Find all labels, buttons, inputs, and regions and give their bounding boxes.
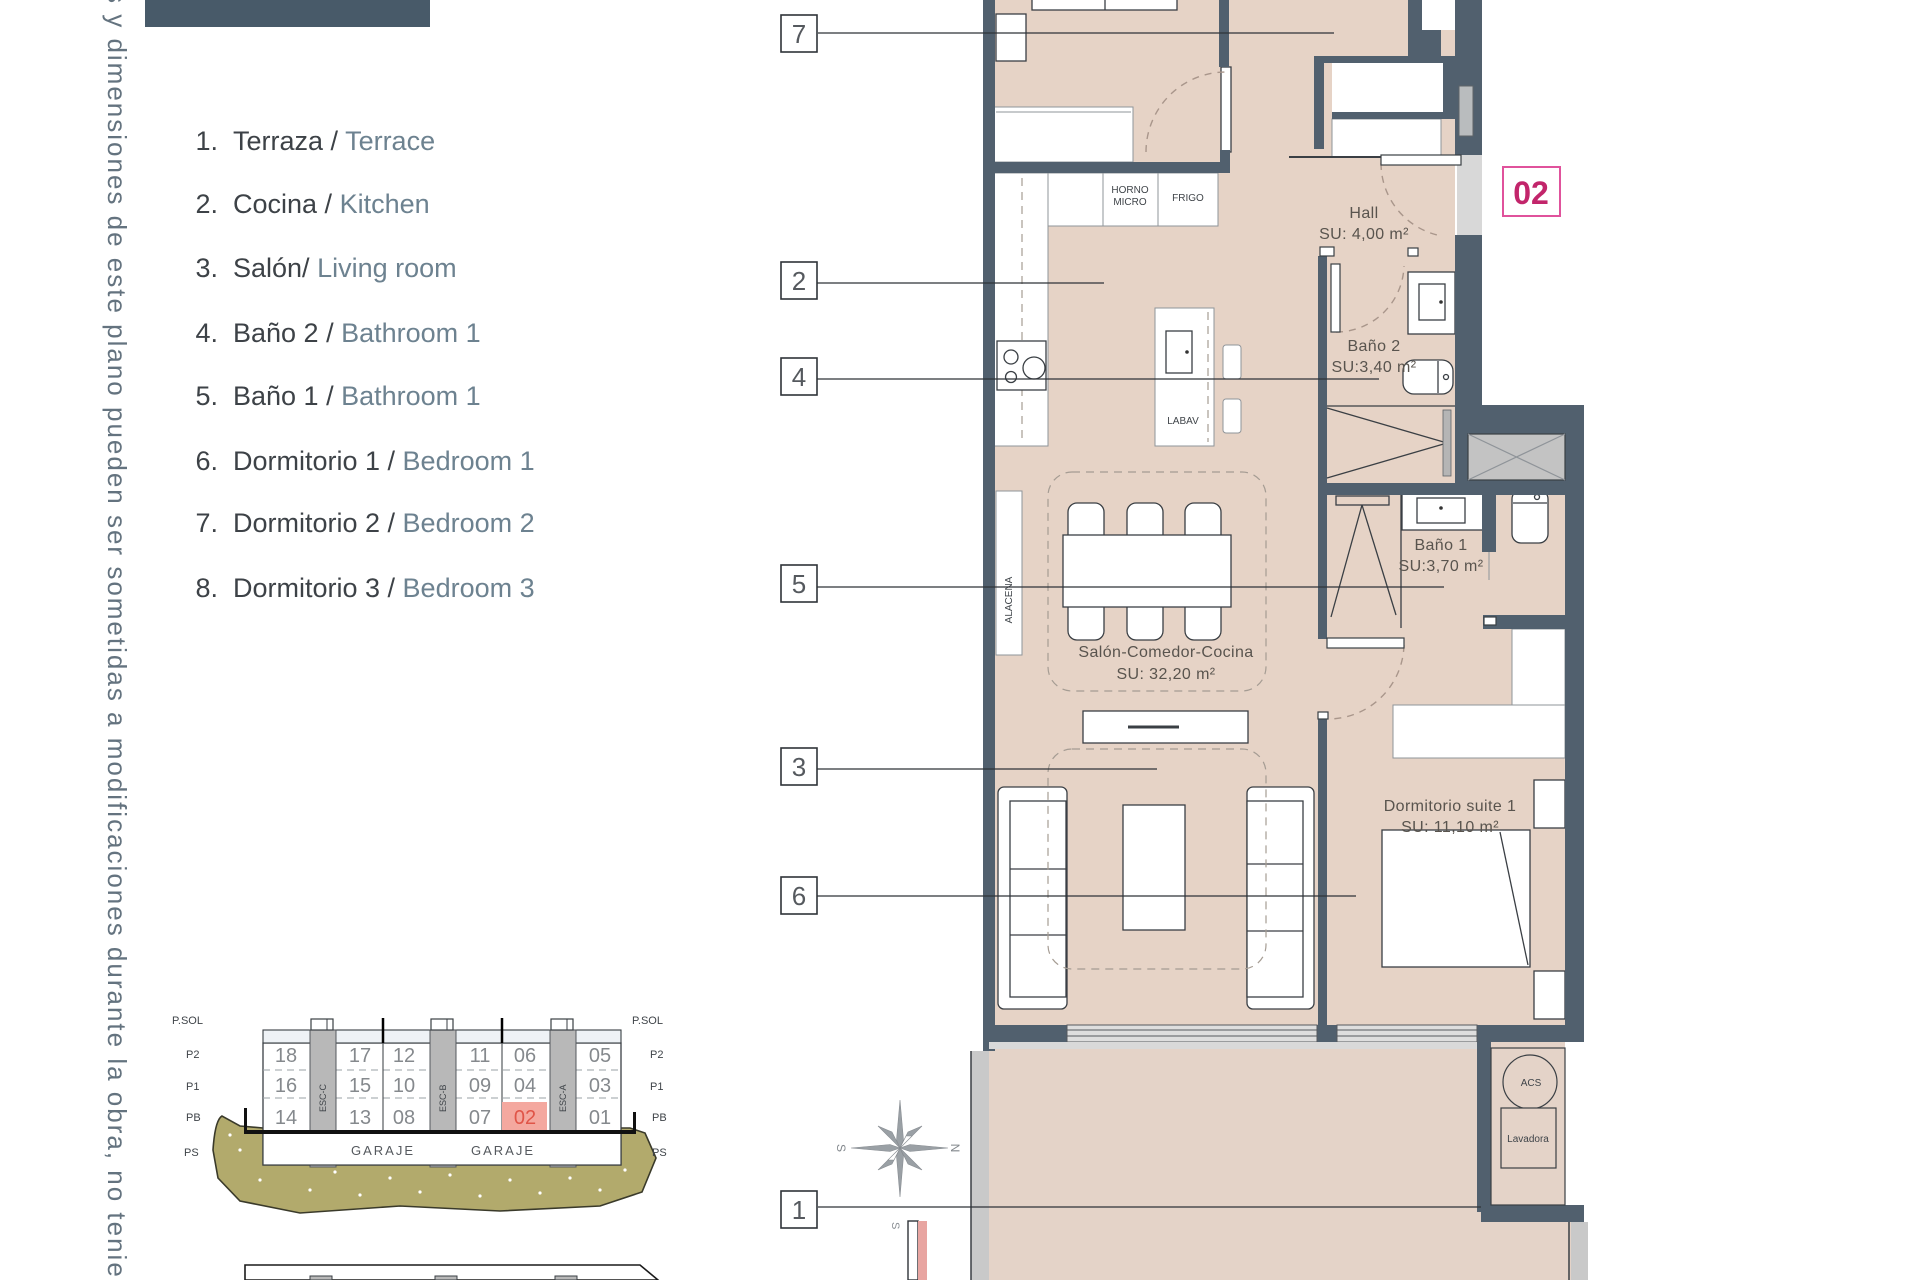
svg-text:Dormitorio 1 / Bedroom 1: Dormitorio 1 / Bedroom 1 (233, 446, 535, 476)
svg-text:02: 02 (514, 1107, 536, 1129)
svg-text:03: 03 (589, 1075, 611, 1097)
svg-text:ALACENA: ALACENA (1004, 576, 1015, 623)
svg-text:5: 5 (792, 569, 806, 599)
svg-text:13: 13 (349, 1107, 371, 1129)
svg-text:P.SOL: P.SOL (632, 1015, 663, 1027)
svg-text:GARAJE: GARAJE (351, 1143, 415, 1158)
svg-text:Dormitorio 3 / Bedroom 3: Dormitorio 3 / Bedroom 3 (233, 573, 535, 603)
svg-text:ACS: ACS (1521, 1078, 1542, 1089)
svg-text:HORNO: HORNO (1111, 185, 1148, 196)
svg-text:Terraza / Terrace: Terraza / Terrace (233, 126, 435, 156)
svg-text:Dormitorio 2 / Bedroom 2: Dormitorio 2 / Bedroom 2 (233, 508, 535, 538)
svg-text:S: S (889, 1222, 901, 1229)
svg-text:02: 02 (1513, 175, 1549, 211)
svg-text:ESC-A: ESC-A (558, 1084, 568, 1112)
svg-text:5.: 5. (195, 381, 218, 411)
svg-text:N: N (948, 1144, 962, 1153)
svg-text:SU: 32,20 m²: SU: 32,20 m² (1116, 666, 1215, 683)
svg-text:4.: 4. (195, 318, 218, 348)
svg-text:05: 05 (589, 1045, 611, 1067)
svg-text:08: 08 (393, 1107, 415, 1129)
svg-text:2: 2 (792, 266, 806, 296)
svg-text:P2: P2 (650, 1049, 663, 1061)
svg-text:Baño 1 / Bathroom 1: Baño 1 / Bathroom 1 (233, 381, 481, 411)
svg-text:14: 14 (275, 1107, 297, 1129)
svg-text:18: 18 (275, 1045, 297, 1067)
svg-text:SU:3,40 m²: SU:3,40 m² (1332, 359, 1417, 376)
svg-text:2.: 2. (195, 189, 218, 219)
svg-text:GARAJE: GARAJE (471, 1143, 535, 1158)
svg-text:12: 12 (393, 1045, 415, 1067)
svg-text:Baño 2 / Bathroom 1: Baño 2 / Bathroom 1 (233, 318, 481, 348)
svg-text:Lavadora: Lavadora (1507, 1134, 1549, 1145)
svg-text:PB: PB (652, 1112, 667, 1124)
svg-text:S: S (834, 1144, 848, 1152)
svg-text:PS: PS (184, 1147, 199, 1159)
svg-text:1: 1 (792, 1195, 806, 1225)
svg-text:17: 17 (349, 1045, 371, 1067)
svg-text:SU: 11,10 m²: SU: 11,10 m² (1401, 819, 1499, 836)
svg-text:Dormitorio suite 1: Dormitorio suite 1 (1384, 798, 1517, 815)
svg-text:P.SOL: P.SOL (172, 1015, 203, 1027)
svg-text:01: 01 (589, 1107, 611, 1129)
svg-text:6.: 6. (195, 446, 218, 476)
svg-text:P1: P1 (650, 1081, 663, 1093)
svg-text:07: 07 (469, 1107, 491, 1129)
svg-text:Cocina / Kitchen: Cocina / Kitchen (233, 189, 430, 219)
svg-text:PB: PB (186, 1112, 201, 1124)
svg-text:8.: 8. (195, 573, 218, 603)
svg-text:Salón/ Living room: Salón/ Living room (233, 253, 457, 283)
svg-text:ESC-B: ESC-B (438, 1084, 448, 1112)
svg-text:P1: P1 (186, 1081, 199, 1093)
svg-text:SU: 4,00 m²: SU: 4,00 m² (1319, 226, 1409, 243)
svg-text:3.: 3. (195, 253, 218, 283)
svg-text:3: 3 (792, 752, 806, 782)
svg-text:1.: 1. (195, 126, 218, 156)
svg-text:P2: P2 (186, 1049, 199, 1061)
svg-text:11: 11 (470, 1045, 491, 1067)
svg-text:15: 15 (349, 1075, 371, 1097)
svg-text:FRIGO: FRIGO (1172, 193, 1204, 204)
svg-text:SU:3,70 m²: SU:3,70 m² (1399, 558, 1484, 575)
svg-text:s y dimensiones de este plano: s y dimensiones de este plano pueden ser… (102, 0, 132, 1280)
svg-text:10: 10 (393, 1075, 415, 1097)
svg-text:Baño 1: Baño 1 (1414, 537, 1467, 554)
svg-text:09: 09 (469, 1075, 491, 1097)
svg-text:MICRO: MICRO (1113, 197, 1147, 208)
svg-text:06: 06 (514, 1045, 536, 1067)
svg-text:04: 04 (514, 1075, 536, 1097)
svg-text:7: 7 (792, 19, 806, 49)
svg-text:Baño 2: Baño 2 (1347, 338, 1400, 355)
svg-text:Hall: Hall (1349, 205, 1378, 222)
svg-text:Salón-Comedor-Cocina: Salón-Comedor-Cocina (1078, 644, 1253, 661)
svg-text:LABAV: LABAV (1167, 416, 1199, 427)
svg-text:PS: PS (652, 1147, 667, 1159)
svg-text:6: 6 (792, 881, 806, 911)
svg-text:7.: 7. (195, 508, 218, 538)
svg-text:ESC-C: ESC-C (318, 1083, 328, 1112)
svg-text:16: 16 (275, 1075, 297, 1097)
svg-text:4: 4 (792, 362, 806, 392)
